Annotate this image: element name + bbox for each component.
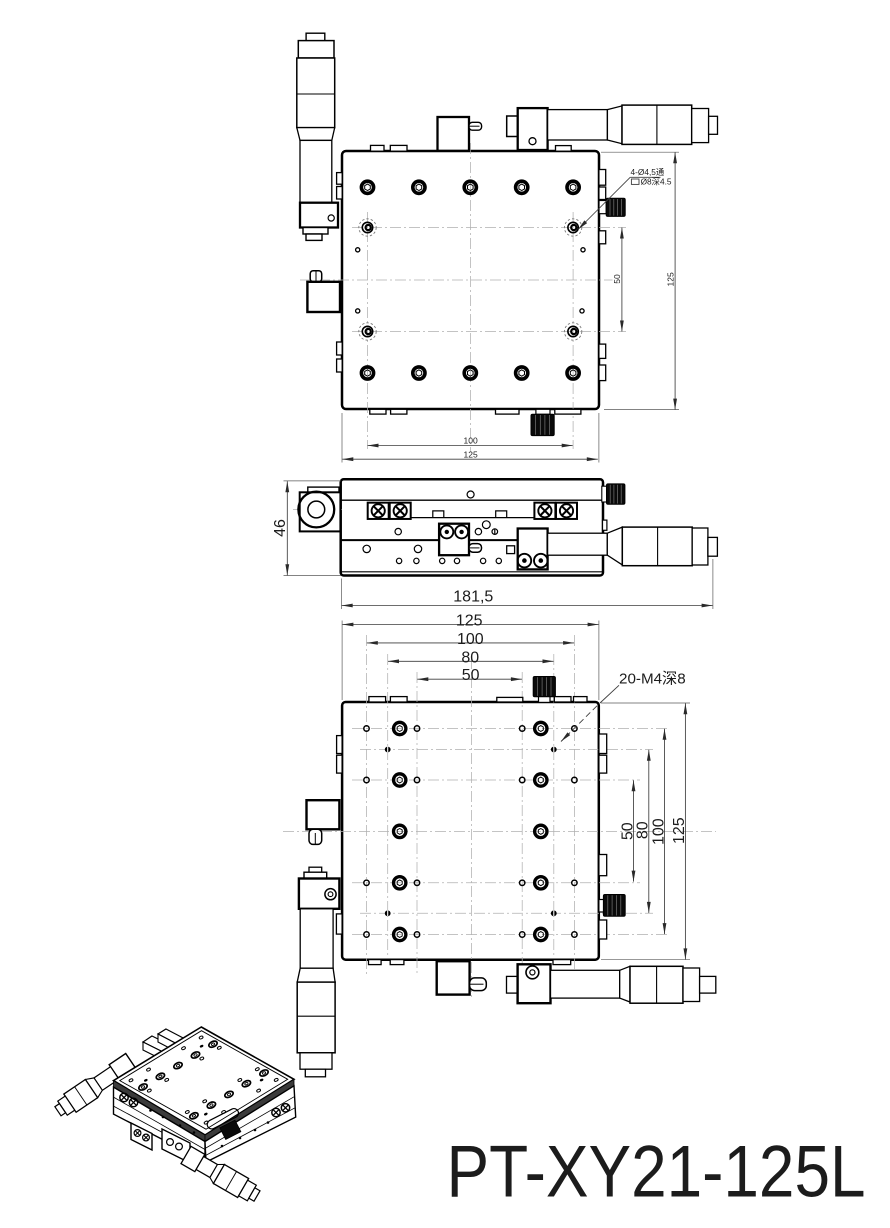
svg-text:46: 46 bbox=[272, 519, 289, 537]
svg-text:125: 125 bbox=[665, 272, 675, 286]
svg-text:Ø8深4.5: Ø8深4.5 bbox=[641, 177, 672, 187]
svg-text:181,5: 181,5 bbox=[453, 589, 493, 606]
svg-text:80: 80 bbox=[635, 821, 652, 839]
svg-text:80: 80 bbox=[461, 649, 479, 666]
svg-text:100: 100 bbox=[457, 631, 484, 648]
svg-text:125: 125 bbox=[456, 612, 483, 629]
svg-text:50: 50 bbox=[462, 667, 480, 684]
svg-text:100: 100 bbox=[651, 818, 668, 845]
svg-text:50: 50 bbox=[612, 274, 622, 284]
svg-text:100: 100 bbox=[464, 436, 478, 446]
svg-text:PT-XY21-125L: PT-XY21-125L bbox=[447, 1130, 866, 1213]
svg-text:125: 125 bbox=[671, 817, 688, 844]
svg-text:20-M4深8: 20-M4深8 bbox=[619, 670, 686, 687]
svg-text:125: 125 bbox=[464, 449, 478, 459]
